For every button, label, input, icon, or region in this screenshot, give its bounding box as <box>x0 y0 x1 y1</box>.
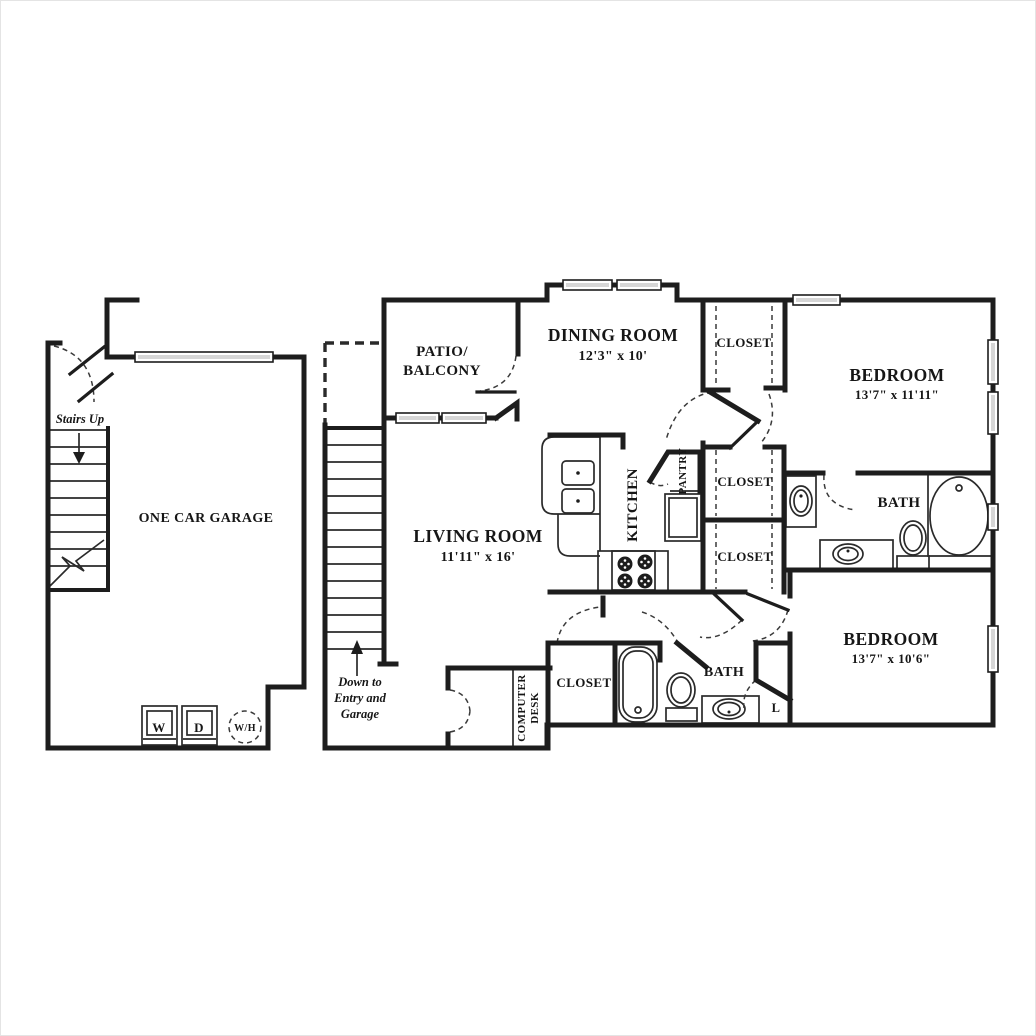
dining-bay-window-left <box>563 280 612 290</box>
hall-mid-closet-label: CLOSET <box>717 474 772 489</box>
main-stair-treads <box>327 445 383 649</box>
upper-closet-door-leaf <box>730 421 758 448</box>
computer-desk-label-line2: DESK <box>529 692 541 724</box>
living-window-left <box>396 413 439 423</box>
bath2-vanity-sink-icon <box>702 696 759 723</box>
bedroom1-right-window-1 <box>988 340 998 384</box>
washer-label: W <box>152 720 165 735</box>
bedroom1-label: BEDROOM <box>849 365 944 385</box>
hall-lower-closet-label: CLOSET <box>717 549 772 564</box>
refrigerator-icon <box>665 494 701 541</box>
bedroom1-dims: 13'7" x 11'11" <box>855 387 939 402</box>
bath1-tub-icon <box>928 474 991 556</box>
bath2-tub-icon <box>619 647 657 722</box>
bath1-vanity-sink-icon <box>820 540 893 569</box>
bath1-window <box>988 504 998 530</box>
stairs-note-line1: Down to <box>337 675 381 689</box>
bath1-pedestal-sink-icon <box>786 476 816 527</box>
stairs-note-line2: Entry and <box>333 691 387 705</box>
bath1-label: BATH <box>878 495 921 511</box>
garage-window <box>135 352 273 362</box>
kitchen-label: KITCHEN <box>625 468 641 542</box>
dryer-label: D <box>194 720 204 735</box>
bedroom2-door-leaf <box>748 594 788 610</box>
stairs-up-label: Stairs Up <box>56 412 104 426</box>
bath2-toilet-icon <box>666 673 697 721</box>
computer-desk-label-line1: COMPUTER <box>516 674 528 742</box>
hall-upper-closet-label: CLOSET <box>716 335 771 350</box>
stairs-note-line3: Garage <box>341 707 380 721</box>
bedroom1-top-window <box>793 295 840 305</box>
bedroom2-closet-label: CLOSET <box>556 675 611 690</box>
patio-label-line2: BALCONY <box>403 363 481 379</box>
garage-down-arrow-icon <box>73 433 85 464</box>
floor-plan-drawing: Stairs Up ONE CAR GARAGE W D W/H PATIO/ … <box>0 0 1036 1036</box>
living-room-label: LIVING ROOM <box>413 526 542 546</box>
kitchen-counter <box>542 437 668 592</box>
dining-bay-window-right <box>617 280 661 290</box>
stairs-up-arrow-icon <box>351 640 363 676</box>
dining-room-dims: 12'3" x 10' <box>579 349 648 364</box>
living-window-right <box>442 413 486 423</box>
linen-closet-label: L <box>772 701 781 715</box>
stove-icon <box>612 551 655 590</box>
stair-opening-dashed <box>325 343 382 424</box>
bath1-toilet-icon <box>897 521 929 569</box>
bedroom2-dims: 13'7" x 10'6" <box>852 651 931 666</box>
lower-closet-door-leaf <box>712 592 742 620</box>
floor-plan-page: Stairs Up ONE CAR GARAGE W D W/H PATIO/ … <box>0 0 1036 1036</box>
patio-label-line1: PATIO/ <box>416 344 468 360</box>
bath2-label: BATH <box>704 665 744 680</box>
bedroom2-right-window <box>988 626 998 672</box>
dining-room-label: DINING ROOM <box>548 325 678 345</box>
stair-break-line <box>50 540 104 586</box>
garage-label: ONE CAR GARAGE <box>139 511 274 526</box>
water-heater-label: W/H <box>234 723 256 734</box>
bedroom2-label: BEDROOM <box>843 629 938 649</box>
living-room-dims: 11'11" x 16' <box>441 550 516 565</box>
bedroom1-right-window-2 <box>988 392 998 434</box>
lower-hall-walls <box>603 592 788 667</box>
kitchen-sink-icon <box>562 461 594 513</box>
pantry-label: PANTRY <box>677 447 689 494</box>
